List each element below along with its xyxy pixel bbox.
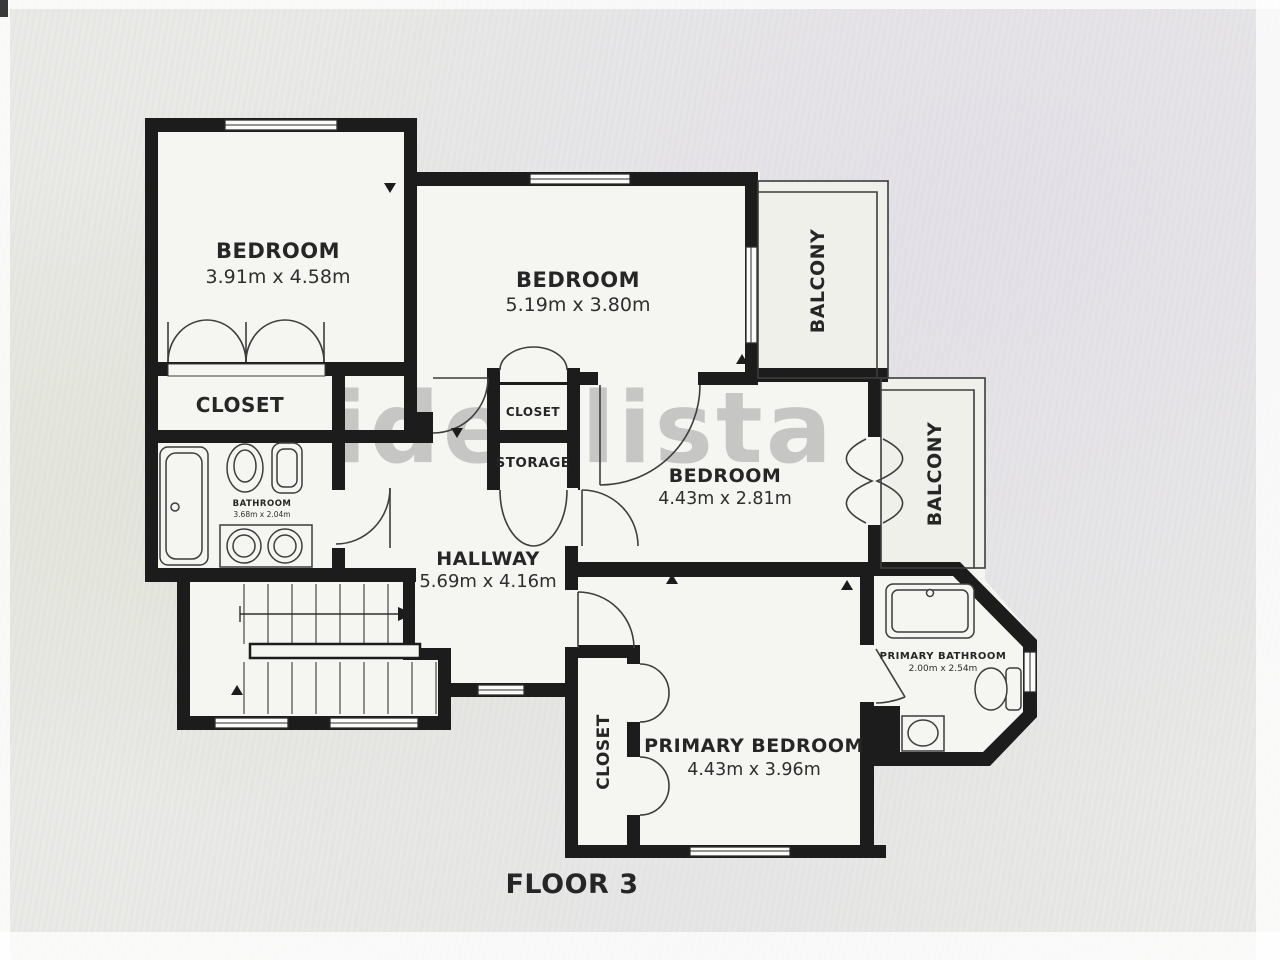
photo-edge-top (0, 0, 1280, 9)
window-stairs-right (330, 718, 418, 728)
primary-bathtub (886, 584, 974, 638)
photo-edge-right (1256, 0, 1280, 960)
bedroom1-label: BEDROOM (216, 239, 340, 263)
window-primary-bathroom (1024, 652, 1036, 692)
stair-rail (250, 644, 420, 658)
window-primary-bottom (690, 847, 790, 856)
floorplan-drawing: idealista (0, 0, 1280, 960)
photo-edge-left (0, 0, 10, 960)
bathtub (160, 447, 208, 565)
bedroom3-label: BEDROOM (669, 465, 782, 487)
bidet (902, 716, 944, 751)
bedroom1-dims: 3.91m x 4.58m (206, 266, 351, 288)
closet-small-label: CLOSET (506, 405, 561, 419)
window-stairs-left (215, 718, 288, 728)
closet-main-label: CLOSET (196, 393, 284, 417)
primary-bathroom-wall-step (874, 706, 900, 752)
photo-edge-bottom (0, 932, 1280, 960)
floorplan-photo: idealista (0, 0, 1280, 960)
hallway-dims: 5.69m x 4.16m (419, 571, 556, 592)
balcony-top-label: BALCONY (807, 229, 829, 334)
primary-toilet (975, 668, 1021, 710)
window-bedroom2-top (530, 174, 630, 184)
floor-label: FLOOR 3 (505, 869, 638, 900)
primary-bathroom-dims: 2.00m x 2.54m (909, 664, 978, 674)
window-bedroom2-right (746, 247, 757, 343)
storage-label: STORAGE (495, 455, 570, 471)
bathroom-dims: 3.68m x 2.04m (233, 510, 290, 519)
primary-bathroom-label: PRIMARY BATHROOM (880, 651, 1007, 662)
bedroom3-dims: 4.43m x 2.81m (658, 489, 792, 509)
window-bedroom1-top (225, 120, 337, 130)
photo-corner-mark (0, 0, 8, 17)
bedroom2-dims: 5.19m x 3.80m (506, 294, 651, 316)
closet-primary-label: CLOSET (594, 714, 614, 790)
toilet (227, 444, 263, 492)
balcony-right-label: BALCONY (924, 422, 946, 527)
primary-bedroom-label: PRIMARY BEDROOM (644, 735, 864, 757)
hallway-label: HALLWAY (436, 548, 540, 570)
bathroom-label: BATHROOM (233, 499, 292, 509)
double-sink-vanity (220, 525, 312, 567)
primary-bedroom-dims: 4.43m x 3.96m (687, 760, 821, 780)
bedroom2-label: BEDROOM (516, 268, 640, 292)
cistern (272, 443, 302, 493)
window-hallway-bottom (478, 685, 524, 695)
